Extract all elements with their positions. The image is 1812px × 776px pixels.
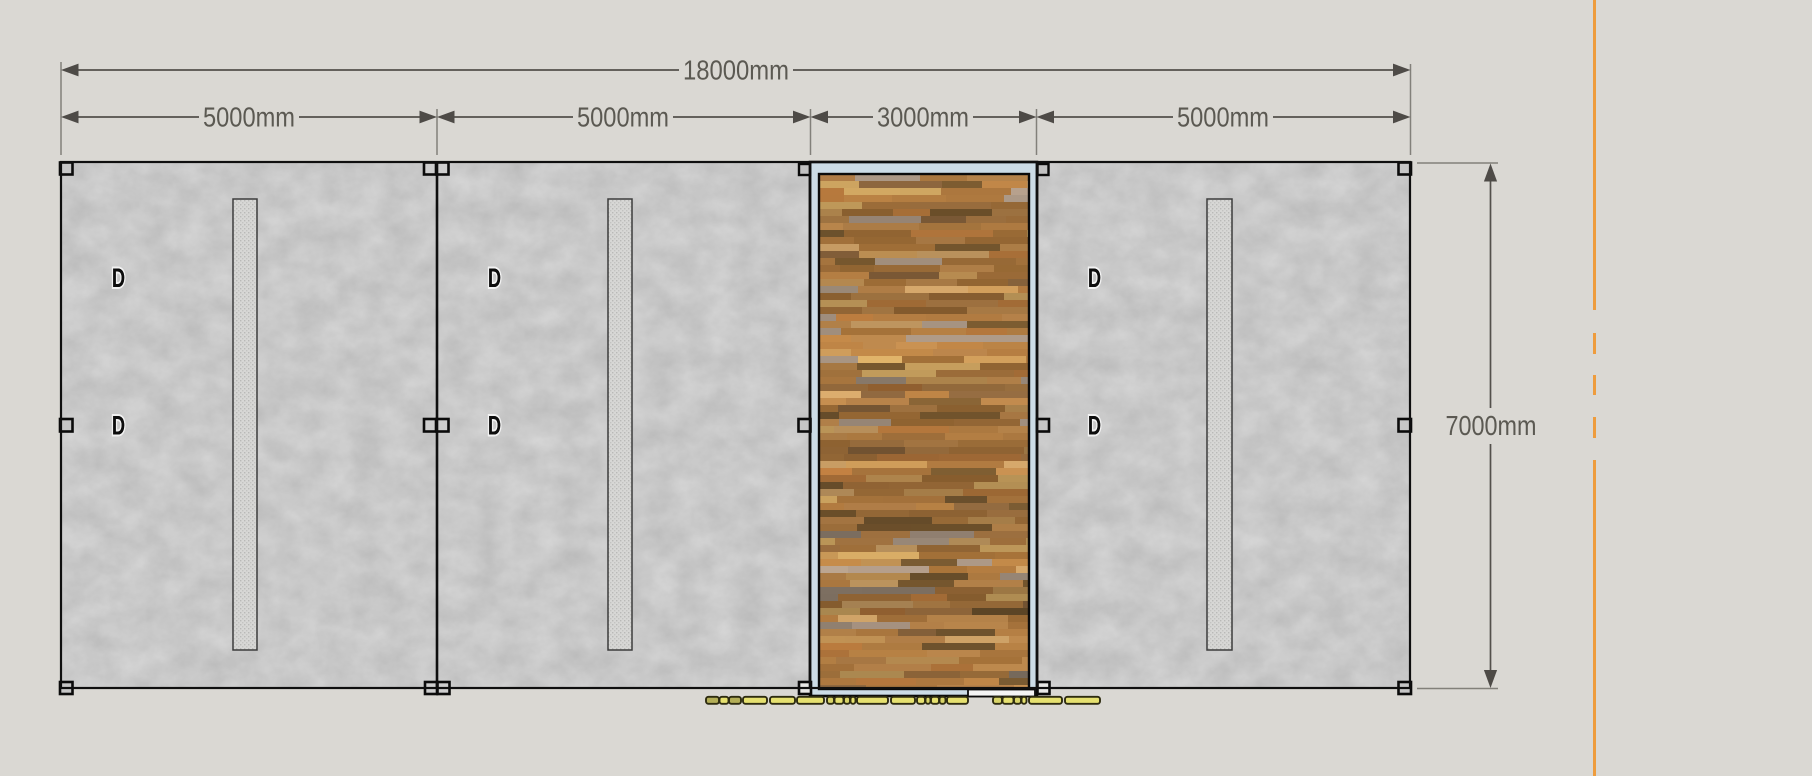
svg-text:5000mm: 5000mm [203, 102, 295, 133]
svg-text:D: D [488, 263, 501, 293]
svg-text:5000mm: 5000mm [1177, 102, 1269, 133]
svg-text:D: D [1088, 263, 1101, 293]
svg-text:D: D [112, 411, 125, 441]
svg-text:D: D [112, 263, 125, 293]
svg-text:7000mm: 7000mm [1446, 410, 1537, 441]
svg-text:18000mm: 18000mm [683, 55, 789, 86]
svg-text:D: D [488, 411, 501, 441]
svg-text:5000mm: 5000mm [577, 102, 669, 133]
svg-text:D: D [1088, 411, 1101, 441]
svg-text:3000mm: 3000mm [877, 102, 969, 133]
